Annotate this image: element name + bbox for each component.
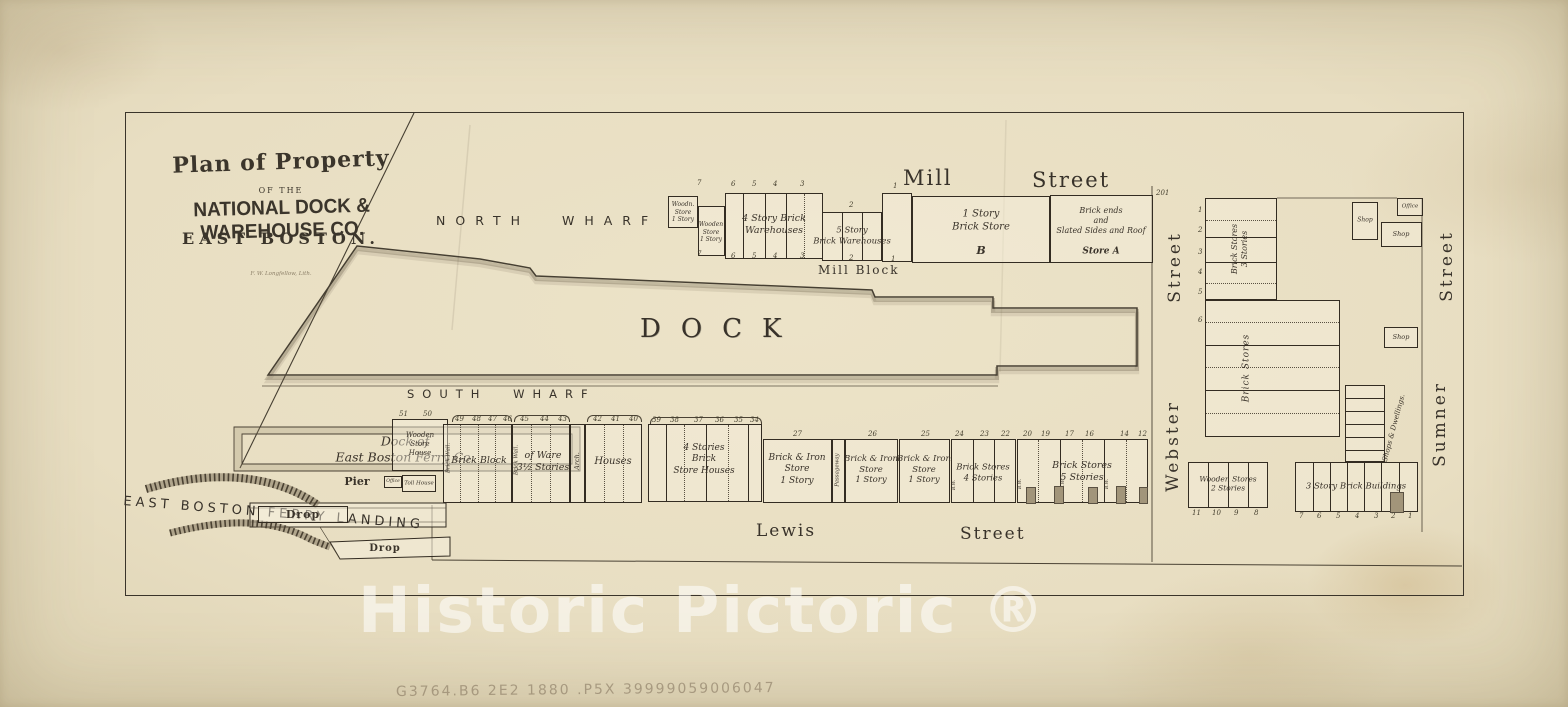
webster-street-label-1: Webster xyxy=(1163,400,1183,492)
building-divider xyxy=(748,425,749,501)
lot-number: 23 xyxy=(980,430,989,438)
lot-number: 20 xyxy=(1023,430,1032,438)
building-divider-dotted xyxy=(1206,322,1339,323)
drop-label-1: Drop xyxy=(286,508,320,522)
lot-number: 201 xyxy=(1156,189,1169,197)
mill-street-label-1: Mill xyxy=(903,166,953,190)
lot-number: 5 xyxy=(752,252,756,260)
lot-number: 42 xyxy=(593,415,602,423)
lot-number: 16 xyxy=(1085,430,1094,438)
lot-number: 9 xyxy=(1234,509,1238,517)
lot-number: 47 xyxy=(488,415,497,423)
lot-number: 39 xyxy=(652,416,661,424)
building-brick-block-label: Brick Block xyxy=(451,455,506,467)
lot-number: 38 xyxy=(670,416,679,424)
lot-number: 7 xyxy=(1299,512,1303,520)
lithographer-imprint: F. W. Longfellow, Lith. xyxy=(150,271,412,277)
building-wooden-store-house-label: Wooden Store House xyxy=(406,431,434,457)
building-of-ware-label: of Ware 3½ Stories xyxy=(517,450,569,474)
lot-number: 4 xyxy=(1198,268,1202,276)
lot-number: 17 xyxy=(1065,430,1074,438)
lot-number: 5 xyxy=(1198,288,1202,296)
lot-number: 36 xyxy=(715,416,724,424)
building-wooden-store-1-label: Woodn. Store 1 Story xyxy=(672,201,695,224)
lot-number: 3 xyxy=(800,252,804,260)
building-brick-stores-3-label: Brick Stores 3 Stories xyxy=(1230,199,1250,299)
lewis-street-label-2: Street xyxy=(960,524,1026,544)
building-divider-dotted xyxy=(1206,413,1339,414)
lot-number: 1 xyxy=(1408,512,1412,520)
toll-house-label: Toll House xyxy=(404,481,434,488)
lot-number: 2 xyxy=(849,201,853,209)
building-houses-label: Houses xyxy=(594,456,631,469)
lot-number: 8 xyxy=(1254,509,1258,517)
sumner-street-label-1: Sumner xyxy=(1430,381,1450,467)
lot-number: 3 xyxy=(800,180,804,188)
sumner-street-label-2: Street xyxy=(1437,230,1457,302)
chimney-mark xyxy=(1116,486,1126,504)
building-brick-stores-long-label: Brick Stores xyxy=(1241,334,1252,403)
map-canvas: Plan of Property OF THE NATIONAL DOCK & … xyxy=(0,0,1568,707)
lot-number: 22 xyxy=(1001,430,1010,438)
shop-label-3: Shop xyxy=(1393,333,1410,341)
building-divider xyxy=(1345,450,1385,451)
lot-number: 48 xyxy=(472,415,481,423)
lot-number: 6 xyxy=(1198,316,1202,324)
mill-block-label: Mill Block xyxy=(818,263,900,277)
lot-number: 45 xyxy=(520,415,529,423)
lot-number: 50 xyxy=(423,410,432,418)
lot-number: 4 xyxy=(773,180,777,188)
lot-number: 37 xyxy=(694,416,703,424)
lot-number: 6 xyxy=(731,180,735,188)
building-divider xyxy=(1345,424,1385,425)
building-divider-dotted xyxy=(1126,440,1127,502)
chimney-mark xyxy=(1054,486,1064,504)
dock-label: DOCK xyxy=(640,314,801,344)
lot-number: 6 xyxy=(1317,512,1321,520)
map-title-city: EAST BOSTON. xyxy=(150,229,412,248)
chimney-mark xyxy=(1088,487,1098,504)
lot-number: 46 xyxy=(503,415,512,423)
lot-number: 7 xyxy=(697,250,701,258)
building-brick-store-b-letter: B xyxy=(976,244,985,258)
chimney-mark xyxy=(1026,487,1036,504)
lot-number: 24 xyxy=(955,430,964,438)
south-wharf-label: SOUTH WHARF xyxy=(407,387,596,401)
pier-label: Pier xyxy=(344,475,369,489)
building-3story-brick-label: 3 Story Brick Buildings xyxy=(1306,482,1406,493)
building-brick-stores-long xyxy=(1205,300,1340,437)
building-brick-iron-store-27-label: Brick & Iron Store 1 Story xyxy=(768,453,825,487)
lot-number: 1 xyxy=(1198,206,1202,214)
lot-number: 1 xyxy=(893,182,897,190)
lot-number: 4 xyxy=(1355,512,1359,520)
lot-number: 43 xyxy=(558,415,567,423)
building-wooden-stores-2-label: Wooden Stores 2 Stories xyxy=(1199,475,1256,494)
lot-number: 27 xyxy=(793,430,802,438)
passageway-label: Passageway xyxy=(835,453,842,487)
lot-number: 4 xyxy=(773,252,777,260)
lot-number: 51 xyxy=(399,410,408,418)
lot-number: 19 xyxy=(1041,430,1050,438)
lot-number: 11 xyxy=(1192,509,1201,517)
building-brick-store-b-label: 1 Story Brick Store xyxy=(952,209,1010,234)
shop-label-1: Shop xyxy=(1357,216,1372,224)
brick-wall-abbr: B.W. xyxy=(1018,479,1024,489)
chimney-mark xyxy=(1139,487,1148,504)
lot-number: 5 xyxy=(752,180,756,188)
lot-number: 25 xyxy=(921,430,930,438)
building-wooden-store-2-label: Wooden Store 1 Story xyxy=(699,221,723,244)
lot-number: 2 xyxy=(1391,512,1395,520)
building-brick-iron-store-26-label: Brick & Iron Store 1 Story xyxy=(844,454,898,486)
lot-number: 5 xyxy=(1336,512,1340,520)
lot-number: 10 xyxy=(1212,509,1221,517)
building-brick-stores-4-label: Brick Stores 4 Stories xyxy=(956,462,1009,483)
building-divider xyxy=(666,425,667,501)
building-divider xyxy=(1345,437,1385,438)
lot-number: 3 xyxy=(1374,512,1378,520)
lot-number: 34 xyxy=(750,416,759,424)
ferry-office-label: Office xyxy=(386,479,400,485)
webster-street-label-2: Street xyxy=(1165,231,1185,303)
lot-number: 12 xyxy=(1138,430,1147,438)
lot-number: 2 xyxy=(1198,226,1202,234)
building-divider xyxy=(1205,390,1340,391)
building-divider xyxy=(1205,345,1340,346)
building-5story-warehouses-label: 5 Story Brick Warehouses xyxy=(813,225,891,246)
building-store-a-label: Brick ends and Slated Sides and Roof xyxy=(1056,206,1145,236)
lot-number: 7 xyxy=(697,179,701,187)
building-divider xyxy=(1345,411,1385,412)
building-4story-warehouses-label: 4 Story Brick Warehouses xyxy=(742,213,806,237)
lot-number: 40 xyxy=(629,415,638,423)
lot-number: 26 xyxy=(868,430,877,438)
building-divider-dotted xyxy=(1206,367,1339,368)
lot-number: 49 xyxy=(455,415,464,423)
building-divider xyxy=(1345,398,1385,399)
lot-number: 6 xyxy=(731,252,735,260)
building-divider-dotted xyxy=(1038,440,1039,502)
drop-label-2: Drop xyxy=(369,543,401,556)
building-4stories-storehouses-label: 4 Stories Brick Store Houses xyxy=(673,443,734,477)
building-store-a-letter: Store A xyxy=(1082,246,1119,257)
building-brick-iron-store-25-label: Brick & Iron Store 1 Story xyxy=(897,454,951,486)
lot-number: 14 xyxy=(1120,430,1129,438)
lot-number: 3 xyxy=(1198,248,1202,256)
office-label: Office xyxy=(1402,204,1419,211)
lot-number: 1 xyxy=(891,255,895,263)
lot-number: 2 xyxy=(849,254,853,262)
shop-label-2: Shop xyxy=(1393,230,1410,238)
north-wharf-label: NORTH WHARF xyxy=(436,213,658,228)
lot-group-brace xyxy=(650,417,762,424)
mill-street-label-2: Street xyxy=(1032,168,1110,192)
lot-number: 44 xyxy=(540,415,549,423)
lot-number: 35 xyxy=(734,416,743,424)
building-arch-label: Arch. xyxy=(573,452,581,470)
chimney-mark xyxy=(1390,492,1404,513)
lot-number: 41 xyxy=(611,415,620,423)
building-brick-stores-5-label: Brick Stores 5 Stories xyxy=(1052,460,1112,484)
lewis-street-label-1: Lewis xyxy=(756,521,816,541)
